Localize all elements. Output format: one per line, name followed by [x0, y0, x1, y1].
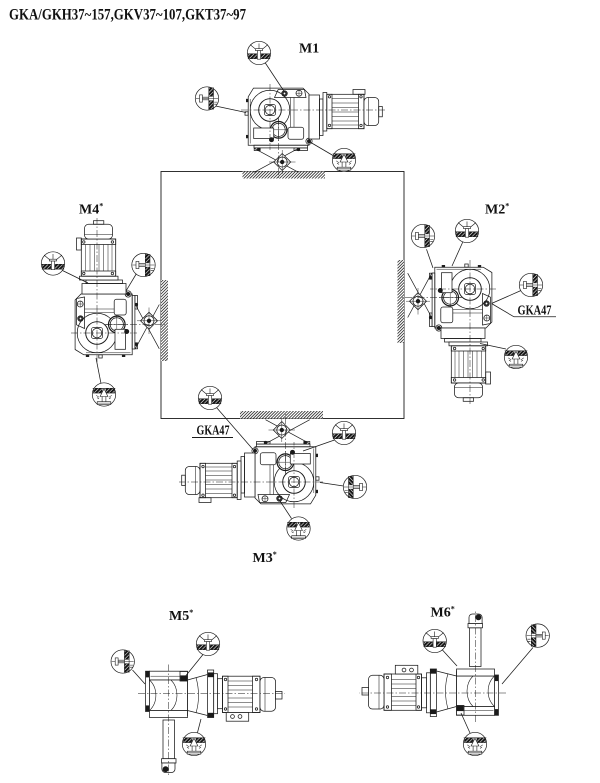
svg-text:GKA47: GKA47	[518, 303, 552, 318]
svg-text:M1: M1	[299, 42, 319, 57]
svg-text:GKA47: GKA47	[197, 423, 230, 438]
svg-text:GKA/GKH37~157,GKV37~107,GKT37~: GKA/GKH37~157,GKV37~107,GKT37~97	[9, 7, 246, 24]
